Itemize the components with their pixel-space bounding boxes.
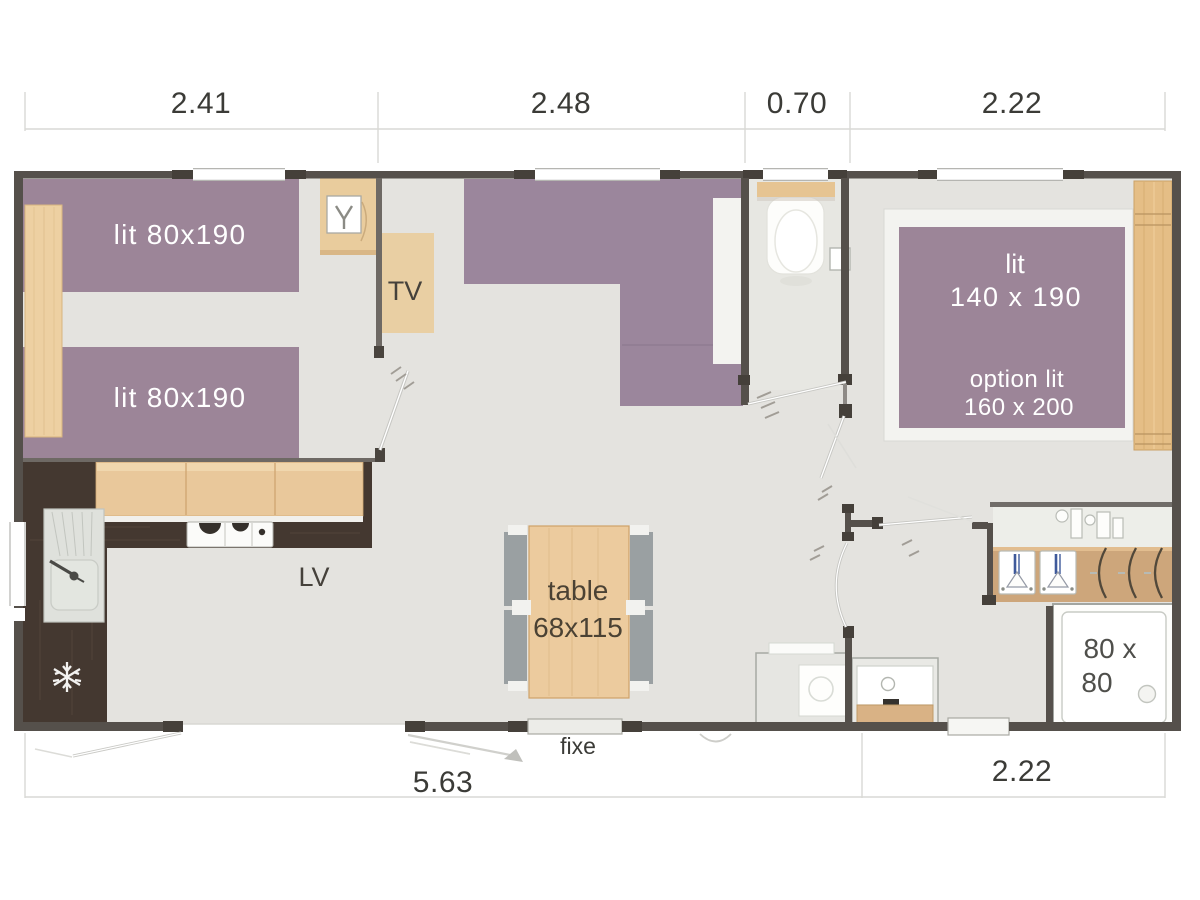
svg-text:160 x 200: 160 x 200	[964, 394, 1074, 421]
svg-text:TV: TV	[388, 276, 423, 306]
svg-text:140 x 190: 140 x 190	[950, 282, 1082, 312]
svg-text:2.22: 2.22	[982, 87, 1042, 120]
svg-text:2.22: 2.22	[992, 755, 1052, 788]
svg-text:2.41: 2.41	[171, 87, 231, 120]
svg-text:table: table	[548, 575, 609, 606]
svg-text:80 x: 80 x	[1084, 633, 1137, 664]
svg-text:68x115: 68x115	[533, 612, 623, 643]
svg-text:5.63: 5.63	[413, 766, 473, 799]
svg-text:2.48: 2.48	[531, 87, 591, 120]
svg-text:fixe: fixe	[560, 733, 596, 759]
svg-text:option lit: option lit	[970, 366, 1064, 393]
svg-text:80: 80	[1081, 667, 1112, 698]
svg-text:0.70: 0.70	[767, 87, 827, 120]
svg-text:lit 80x190: lit 80x190	[114, 382, 247, 413]
svg-text:LV: LV	[298, 562, 329, 592]
svg-text:lit: lit	[1005, 249, 1025, 279]
svg-text:lit 80x190: lit 80x190	[114, 219, 247, 250]
